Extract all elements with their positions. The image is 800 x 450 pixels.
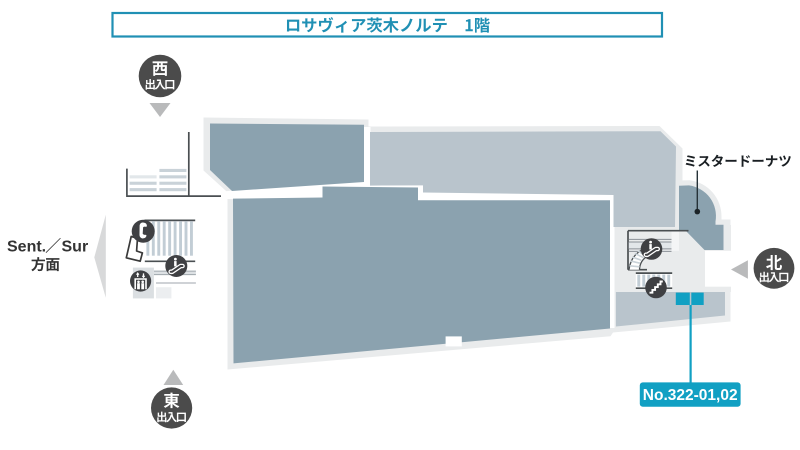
svg-text:Sur: Sur xyxy=(62,239,89,256)
svg-text:Sent.: Sent. xyxy=(7,239,46,256)
svg-text:No.322-01,02: No.322-01,02 xyxy=(643,387,738,404)
